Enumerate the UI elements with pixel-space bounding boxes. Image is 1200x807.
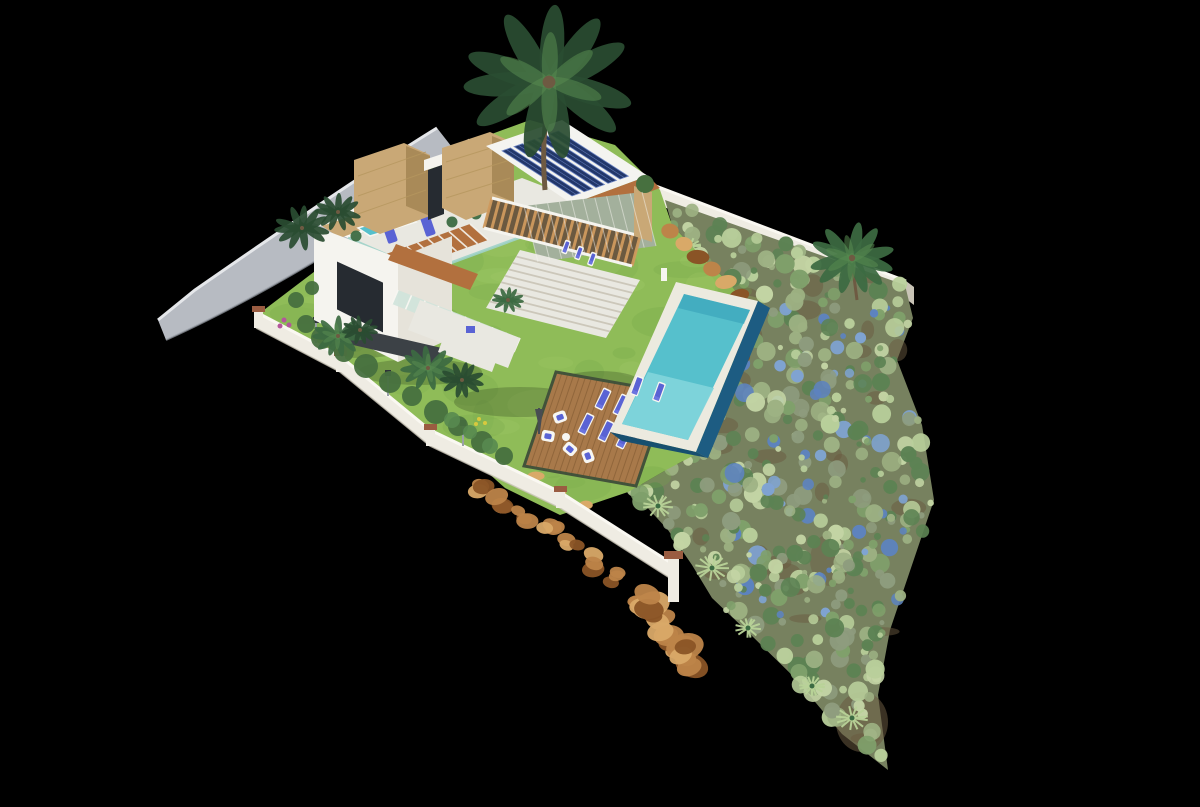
shrub xyxy=(791,634,804,647)
wall-end-pillar xyxy=(668,556,679,602)
shrub xyxy=(726,601,735,610)
shrub xyxy=(830,340,844,354)
shrub xyxy=(886,486,893,493)
garden-bush xyxy=(297,315,315,333)
shrub xyxy=(663,518,675,530)
shrub xyxy=(818,348,831,361)
shrub xyxy=(722,512,740,530)
agave-center xyxy=(810,684,815,689)
pink-flowers xyxy=(282,318,287,323)
shrub xyxy=(814,514,828,528)
shrub xyxy=(808,614,818,624)
shrub xyxy=(846,342,863,359)
shrub xyxy=(832,393,842,403)
potted-plant xyxy=(447,217,458,228)
shrub xyxy=(799,337,814,352)
shrub xyxy=(746,393,765,412)
shrub xyxy=(791,247,803,259)
shrub xyxy=(827,406,836,415)
shrub xyxy=(887,514,895,522)
shrub xyxy=(748,448,759,459)
garden-bush xyxy=(288,292,304,308)
shrub xyxy=(841,408,847,414)
shrub xyxy=(829,303,840,314)
yellow-flowers xyxy=(474,422,478,426)
shrub xyxy=(856,448,869,461)
shrub xyxy=(853,374,872,393)
shrub xyxy=(712,490,726,504)
wall-post xyxy=(426,428,435,446)
shrub xyxy=(885,318,904,337)
shrub xyxy=(866,659,885,678)
shrub xyxy=(744,461,752,469)
shrub xyxy=(768,559,783,574)
wall-post xyxy=(254,310,263,328)
shrub xyxy=(821,319,839,337)
shrub xyxy=(773,279,781,287)
shrub xyxy=(769,434,778,443)
shrub xyxy=(694,503,708,517)
shrub xyxy=(872,404,891,423)
shrub xyxy=(700,546,706,552)
shrub xyxy=(783,415,792,424)
shrub xyxy=(758,250,775,267)
shrub xyxy=(778,345,783,350)
shrub xyxy=(790,270,809,289)
shrub xyxy=(877,632,883,638)
shrub xyxy=(870,309,878,317)
garden-bush xyxy=(379,371,401,393)
wall-post-cap xyxy=(554,486,567,492)
shrub xyxy=(826,567,831,572)
shrub xyxy=(899,527,906,534)
shrub xyxy=(832,415,839,422)
shrub xyxy=(874,749,887,762)
shrub xyxy=(795,419,808,432)
garden-bush xyxy=(402,386,422,406)
palm-crown-center xyxy=(506,298,510,302)
garden-bush xyxy=(354,354,378,378)
wall-post-cap xyxy=(424,424,437,430)
shrub xyxy=(872,603,885,616)
shrub xyxy=(774,360,786,372)
shrub xyxy=(777,648,794,665)
shrub xyxy=(759,584,772,597)
shrub xyxy=(862,493,870,501)
side-table xyxy=(562,433,570,441)
shrub xyxy=(753,359,763,369)
shrub xyxy=(822,531,831,540)
palm-crown-center xyxy=(300,226,304,230)
shrub xyxy=(904,320,913,329)
shrub xyxy=(864,438,871,445)
shrub xyxy=(789,315,808,334)
pink-flowers xyxy=(278,324,283,329)
shrub xyxy=(852,525,866,539)
shrub xyxy=(829,580,836,587)
shrub xyxy=(864,692,874,702)
shrub xyxy=(775,446,781,452)
shrub xyxy=(761,494,775,508)
shrub xyxy=(879,620,884,625)
shrub xyxy=(866,522,877,533)
shrub xyxy=(702,534,709,541)
shrub xyxy=(815,450,826,461)
shrub xyxy=(860,477,866,483)
palm-crown-center xyxy=(336,210,340,214)
shrub xyxy=(751,233,762,244)
lawn-tone xyxy=(538,357,573,370)
shrub xyxy=(843,559,855,571)
shrub xyxy=(812,634,823,645)
shrub xyxy=(886,395,894,403)
shrub xyxy=(807,535,820,548)
terrace-furniture-blue xyxy=(466,326,475,333)
render-stage xyxy=(0,0,1200,807)
shrub xyxy=(777,611,784,618)
shrub xyxy=(726,431,741,446)
pool-corner-post xyxy=(661,268,667,281)
shrub xyxy=(902,412,916,426)
shrub xyxy=(818,298,828,308)
shrub xyxy=(856,441,861,446)
shrub xyxy=(784,505,795,516)
shrub xyxy=(799,454,805,460)
agave-center xyxy=(746,626,751,631)
pillar-top-bush xyxy=(636,175,654,193)
shrub xyxy=(865,504,883,522)
shrub xyxy=(719,580,726,587)
shrub xyxy=(781,577,801,597)
shrub xyxy=(738,245,747,254)
shrub xyxy=(892,277,907,292)
palm-crown-center xyxy=(849,255,855,261)
villa-aerial-render xyxy=(0,0,1200,807)
shrub xyxy=(828,288,841,301)
shrub xyxy=(760,636,775,651)
agave-center xyxy=(710,566,715,571)
garden-bush-light xyxy=(444,412,460,428)
shrub xyxy=(847,663,862,678)
shrub xyxy=(861,361,871,371)
shrub xyxy=(903,509,919,525)
shrub xyxy=(785,293,803,311)
agave-center xyxy=(656,504,661,509)
shrub xyxy=(743,528,758,543)
shrub xyxy=(672,208,682,218)
shrub xyxy=(798,551,812,565)
shrub xyxy=(840,333,846,339)
shrub xyxy=(874,533,881,540)
shrub xyxy=(674,532,691,549)
shrub xyxy=(727,570,741,584)
shrub xyxy=(899,495,908,504)
shrub xyxy=(725,463,745,483)
lawn-tone xyxy=(613,347,636,359)
shrub xyxy=(778,236,793,251)
yellow-flowers xyxy=(477,417,481,421)
shrub xyxy=(844,318,855,329)
shrub xyxy=(878,471,884,477)
shrub xyxy=(804,597,810,603)
shrub xyxy=(839,686,847,694)
shrub xyxy=(856,605,867,616)
shrub xyxy=(871,434,889,452)
shrub xyxy=(914,416,922,424)
shrub xyxy=(874,356,886,368)
shrub xyxy=(731,252,737,258)
shrub xyxy=(796,535,806,545)
shrub xyxy=(875,569,884,578)
wall-post-cap xyxy=(252,306,265,312)
shrub xyxy=(848,496,856,504)
shrub xyxy=(835,589,847,601)
shrub xyxy=(828,460,846,478)
shrub xyxy=(742,477,758,493)
shrub xyxy=(751,267,758,274)
garden-bush xyxy=(495,447,513,465)
wall-end-pillar-cap xyxy=(664,551,683,559)
shrub xyxy=(807,575,825,593)
shrub xyxy=(829,476,841,488)
shrub xyxy=(685,204,698,217)
shrub xyxy=(861,548,868,555)
yellow-flowers xyxy=(483,421,487,425)
shrub xyxy=(858,736,877,755)
palm-crown-center xyxy=(426,366,430,370)
shrub xyxy=(821,539,839,557)
shrub xyxy=(767,400,784,417)
shrub xyxy=(745,427,760,442)
shrub xyxy=(746,552,752,558)
pink-flowers xyxy=(287,323,292,328)
stone-tower-left-side xyxy=(406,146,430,216)
shrub xyxy=(768,307,778,317)
shrub xyxy=(762,483,775,496)
shrub xyxy=(824,437,840,453)
shrub xyxy=(927,500,934,507)
shrub xyxy=(865,396,872,403)
shrub xyxy=(730,499,744,513)
palm-crown-center xyxy=(358,328,362,332)
shrub xyxy=(855,332,866,343)
shrub xyxy=(862,639,874,651)
shrub xyxy=(872,373,890,391)
shrub xyxy=(823,494,828,499)
shrub xyxy=(791,370,804,383)
shrub xyxy=(722,228,742,248)
palm-crown-center xyxy=(460,378,464,382)
shrub xyxy=(792,431,805,444)
shrub xyxy=(845,369,854,378)
shrub xyxy=(813,430,823,440)
shrub xyxy=(847,588,854,595)
shrub xyxy=(900,474,911,485)
shrub xyxy=(915,478,924,487)
shrub xyxy=(806,651,823,668)
shrub xyxy=(902,534,912,544)
shrub xyxy=(843,540,854,551)
shrub xyxy=(869,651,878,660)
potted-plant xyxy=(351,231,362,242)
garden-bush-light xyxy=(482,438,498,454)
shrub xyxy=(825,618,844,637)
shrub xyxy=(763,463,776,476)
shrub xyxy=(700,478,715,493)
shrub xyxy=(734,583,743,592)
agave-center xyxy=(850,716,855,721)
palm-crown-center xyxy=(543,76,556,89)
shrub xyxy=(757,342,776,361)
garden-bush xyxy=(305,281,319,295)
shrub xyxy=(869,540,878,549)
palm-crown-center xyxy=(336,334,340,338)
shrub xyxy=(802,479,814,491)
wall-post xyxy=(556,490,565,508)
shrub xyxy=(916,524,929,537)
shrub xyxy=(671,480,680,489)
garden-bush-light xyxy=(463,425,477,439)
shrub xyxy=(847,424,863,440)
shrub xyxy=(750,564,768,582)
shrub xyxy=(877,345,883,351)
shrub xyxy=(882,452,902,472)
shrub xyxy=(912,433,931,452)
shrub xyxy=(821,363,828,370)
shrub xyxy=(844,598,855,609)
shrub xyxy=(798,353,812,367)
shrub xyxy=(892,296,903,307)
shrub xyxy=(778,618,786,626)
shrub xyxy=(895,590,906,601)
shrub xyxy=(775,254,794,273)
shrub xyxy=(801,465,808,472)
tower-passage-opening xyxy=(428,164,444,220)
shrub xyxy=(810,388,822,400)
shrub xyxy=(714,235,722,243)
shrub xyxy=(881,539,898,556)
